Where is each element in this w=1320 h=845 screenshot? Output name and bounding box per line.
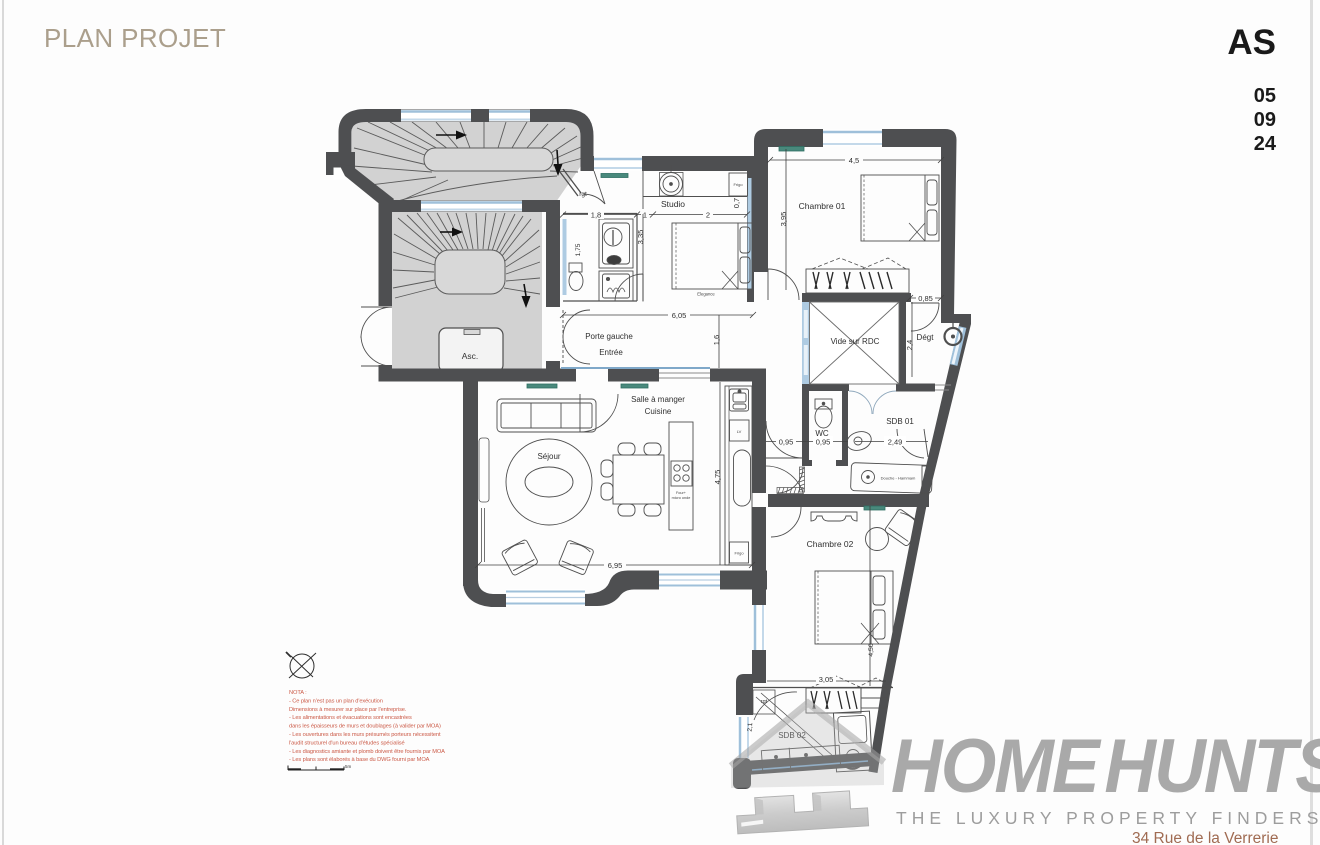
svg-text:34 Rue de la Verrerie: 34 Rue de la Verrerie [1132,830,1278,845]
svg-text:6,95: 6,95 [608,561,623,570]
svg-text:4,75: 4,75 [713,470,722,485]
svg-text:SDB 01: SDB 01 [886,417,914,426]
svg-text:1,6: 1,6 [712,335,721,345]
svg-text:Studio: Studio [661,199,685,209]
svg-text:05: 05 [1254,85,1276,107]
svg-text:- Les alimentations et évacuat: - Les alimentations et évacuations sont … [289,715,412,721]
svg-text:1: 1 [643,211,647,220]
svg-text:3,05: 3,05 [819,675,834,684]
svg-text:Elegance: Elegance [697,292,715,297]
svg-text:Entrée: Entrée [599,348,623,357]
svg-text:1,8: 1,8 [591,211,601,220]
svg-text:Chambre 02: Chambre 02 [807,539,854,549]
svg-text:4,5: 4,5 [849,156,859,165]
svg-text:Four+: Four+ [676,491,687,495]
svg-text:6,05: 6,05 [672,311,687,320]
svg-text:Salle à manger: Salle à manger [631,395,685,404]
svg-text:NOTA :: NOTA : [289,690,307,696]
svg-text:- Les diagnostics amiante et p: - Les diagnostics amiante et plomb doive… [289,749,445,755]
svg-text:Cuisine: Cuisine [645,407,672,416]
svg-text:3,95: 3,95 [779,212,788,227]
svg-text:2: 2 [706,211,710,220]
svg-text:Asc.: Asc. [462,351,479,361]
svg-text:2,4: 2,4 [905,340,914,350]
svg-text:HOMEHUNTS: HOMEHUNTS [891,723,1320,809]
svg-text:Dimensions à mesurer sur place: Dimensions à mesurer sur place par l'ent… [289,707,407,713]
svg-text:3,35: 3,35 [636,230,645,245]
svg-text:Frigo: Frigo [734,551,744,556]
svg-text:- Les ouvertures dans les murs: - Les ouvertures dans les murs présumés … [289,732,441,738]
svg-text:0,85: 0,85 [918,294,933,303]
svg-text:Porte gauche: Porte gauche [585,332,633,341]
svg-text:AS: AS [1227,23,1276,62]
svg-text:WC: WC [815,429,829,438]
svg-text:2,1: 2,1 [747,722,755,732]
svg-text:l'audit structurel d'un bureau: l'audit structurel d'un bureau d'études … [289,740,405,746]
svg-text:dans les épaisseurs de murs et: dans les épaisseurs de murs et doublages… [289,724,441,730]
svg-text:24: 24 [1254,133,1277,155]
svg-text:0,95: 0,95 [779,438,794,447]
svg-text:5m: 5m [345,764,352,769]
svg-text:0,95: 0,95 [816,438,831,447]
svg-text:2,49: 2,49 [888,438,903,447]
svg-text:- Ce plan n'est pas un plan d': - Ce plan n'est pas un plan d'exécution [289,698,383,704]
svg-text:micro onde: micro onde [672,496,691,500]
svg-text:rgt: rgt [579,191,587,198]
svg-text:Frigo: Frigo [733,182,743,187]
svg-text:Douche - Hammam: Douche - Hammam [881,476,916,481]
svg-text:09: 09 [1254,109,1276,131]
svg-text:4,50: 4,50 [868,643,875,656]
svg-text:Dégt: Dégt [917,333,935,342]
svg-text:THE LUXURY PROPERTY FINDERS: THE LUXURY PROPERTY FINDERS [896,808,1320,828]
svg-text:PLAN PROJET: PLAN PROJET [44,23,226,53]
svg-text:Vide sur RDC: Vide sur RDC [831,337,880,346]
svg-text:- Les plans sont élaborés à ba: - Les plans sont élaborés à base du DWG … [289,757,430,763]
svg-text:1,75: 1,75 [575,243,582,256]
svg-text:0,7: 0,7 [732,198,741,208]
svg-text:Séjour: Séjour [537,452,560,461]
svg-text:LV: LV [737,429,742,434]
svg-text:Chambre 01: Chambre 01 [799,201,846,211]
